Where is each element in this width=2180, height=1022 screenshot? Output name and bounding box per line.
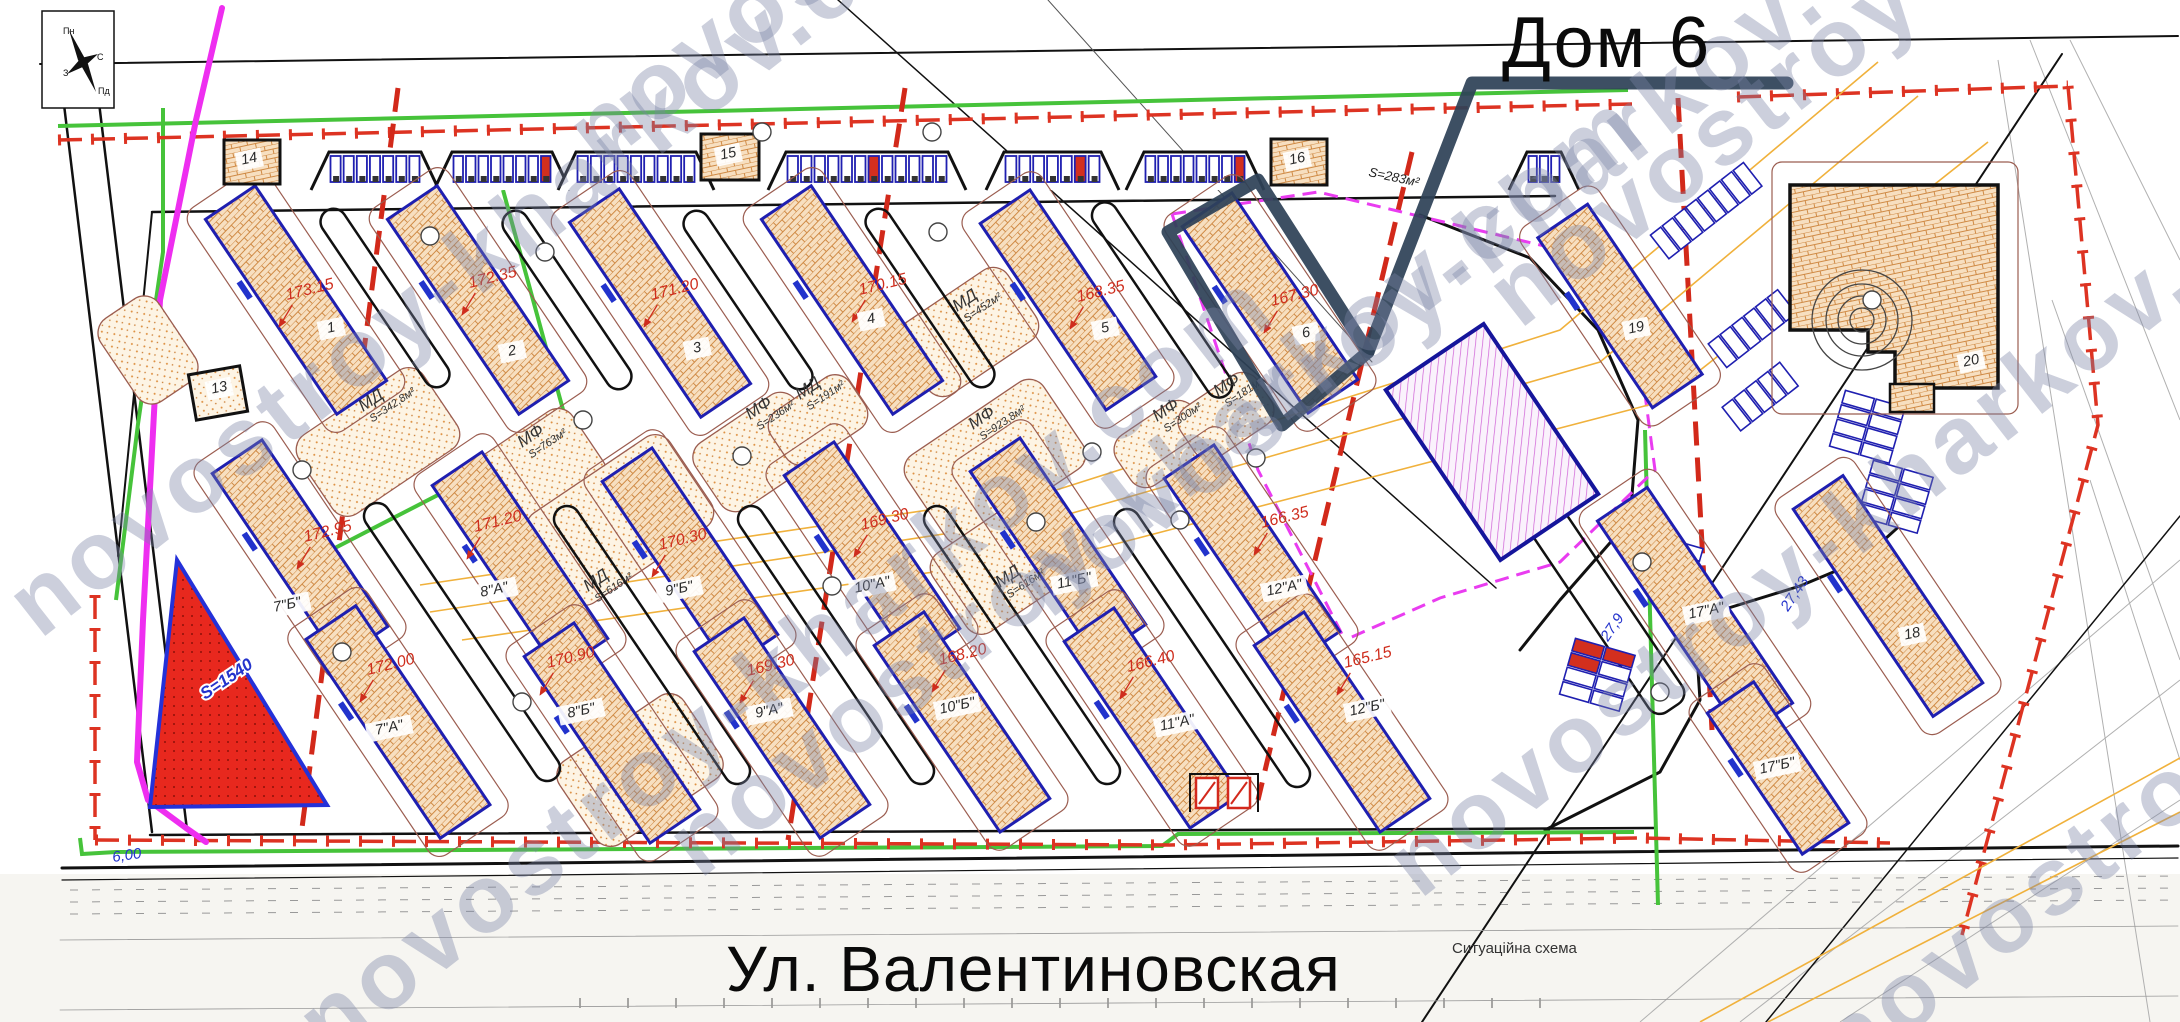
svg-text:165.15: 165.15 xyxy=(1342,644,1394,672)
svg-text:З: З xyxy=(63,68,68,78)
purple-hatched-building xyxy=(1386,324,1598,560)
site-plan-drawing: S=1540МДS=342,8м²МФS=236м²МДS=191м²МДS=4… xyxy=(0,0,2180,1022)
street-name-label: Ул. Валентиновская xyxy=(726,932,1341,1006)
svg-text:S=283м²: S=283м² xyxy=(1367,164,1421,189)
svg-text:6,00: 6,00 xyxy=(111,845,143,866)
situational-scheme-label: Ситуаційна схема xyxy=(1452,940,1577,957)
compass-rose: ПнСЗПд xyxy=(42,11,114,108)
site-plan-page: { "texts": { "dom6": "Дом 6", "street": … xyxy=(0,0,2180,1022)
house-6-callout-label: Дом 6 xyxy=(1502,2,1711,84)
svg-text:18: 18 xyxy=(1903,625,1922,644)
svg-text:С: С xyxy=(97,52,104,62)
svg-text:Пд: Пд xyxy=(98,86,110,96)
svg-text:Пн: Пн xyxy=(63,26,74,36)
svg-text:19: 19 xyxy=(1627,319,1646,338)
svg-text:14: 14 xyxy=(240,150,259,169)
svg-text:166.35: 166.35 xyxy=(1259,504,1311,532)
